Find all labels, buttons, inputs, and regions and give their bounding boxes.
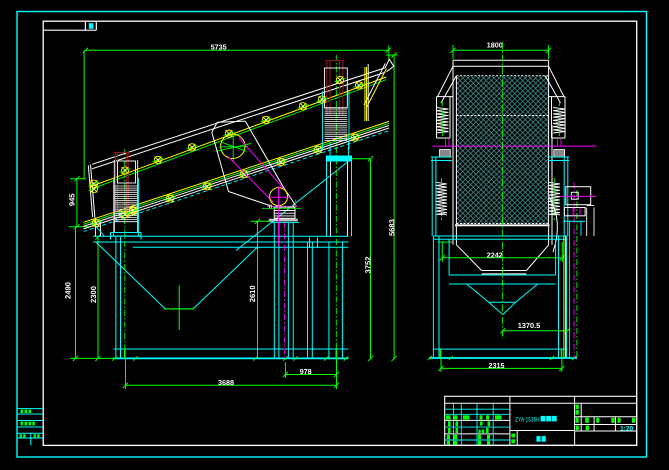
svg-text:2490: 2490 bbox=[64, 282, 73, 299]
svg-text:978: 978 bbox=[300, 367, 312, 376]
svg-text:2242: 2242 bbox=[487, 250, 503, 259]
svg-text:ZYA-1536H: ZYA-1536H bbox=[515, 416, 540, 423]
svg-text:3688: 3688 bbox=[218, 378, 234, 387]
svg-text:2300: 2300 bbox=[89, 286, 98, 303]
svg-text:1800: 1800 bbox=[487, 40, 503, 49]
svg-text:2315: 2315 bbox=[489, 361, 505, 370]
svg-text:5735: 5735 bbox=[211, 43, 227, 52]
svg-text:1:20: 1:20 bbox=[620, 425, 634, 432]
svg-text:2610: 2610 bbox=[248, 285, 257, 302]
svg-text:945: 945 bbox=[67, 193, 76, 206]
svg-text:1370.5: 1370.5 bbox=[518, 321, 541, 330]
svg-text:5683: 5683 bbox=[387, 219, 396, 236]
svg-text:3752: 3752 bbox=[363, 257, 372, 274]
